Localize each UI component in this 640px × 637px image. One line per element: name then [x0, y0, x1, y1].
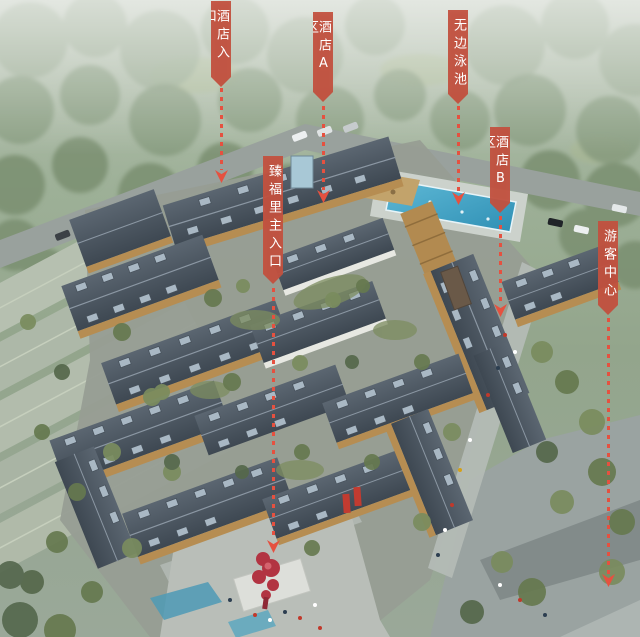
callout-banner-hotel-zone-a: 酒店A区 — [313, 12, 333, 102]
callout-label: 臻福里主入口 — [266, 164, 281, 272]
dotted-leader-line — [220, 88, 223, 170]
callout-banner-infinity-pool: 无边泳池 — [448, 10, 468, 104]
callout-banner-hotel-zone-b: 酒店B区 — [490, 127, 510, 213]
callout-label: 无边泳池 — [451, 18, 466, 90]
dotted-leader-line — [322, 106, 325, 190]
callout-banner-hotel-entrance: 酒店入口 — [211, 1, 231, 87]
wall-banner — [342, 494, 350, 513]
dotted-leader-line — [499, 216, 502, 304]
wall-banner — [353, 487, 361, 506]
callout-banner-visitor-center: 游客中心 — [598, 221, 618, 315]
glass-tower — [291, 156, 313, 188]
callout-banner-zhenfuli-main-entrance: 臻福里主入口 — [263, 156, 283, 284]
site-plan-rendering: 酒店入口 酒店A区 无边泳池 酒店B区 游客中心 臻福里主入口 — [0, 0, 640, 637]
dotted-leader-line — [457, 106, 460, 192]
callout-label: 游客中心 — [601, 229, 616, 301]
dotted-leader-line — [272, 288, 275, 540]
dotted-leader-line — [607, 318, 610, 574]
